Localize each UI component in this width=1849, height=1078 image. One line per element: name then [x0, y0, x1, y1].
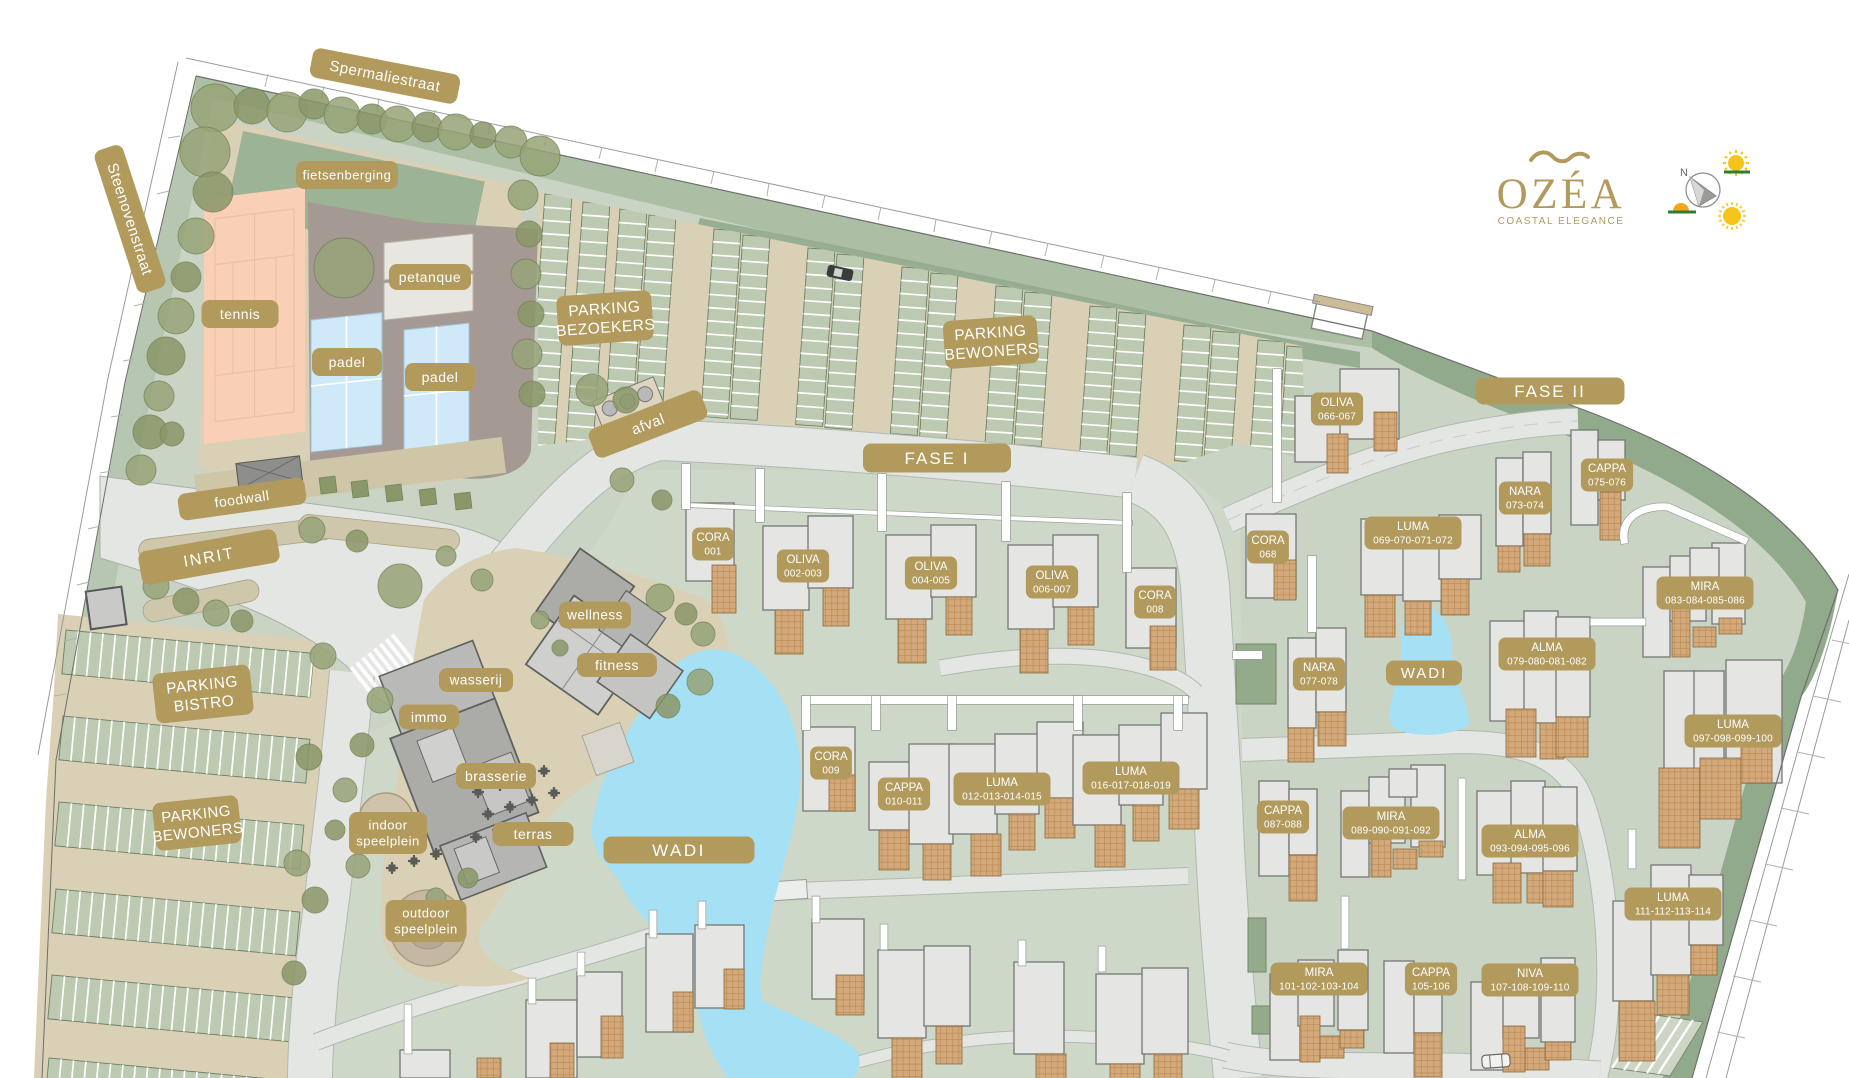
svg-text:CAPPA: CAPPA [1412, 967, 1450, 979]
svg-text:002-003: 002-003 [784, 569, 822, 580]
svg-text:MIRA: MIRA [1691, 581, 1720, 593]
svg-text:073-074: 073-074 [1506, 501, 1544, 512]
svg-text:outdoor: outdoor [402, 906, 450, 921]
svg-text:OLIVA: OLIVA [1035, 570, 1068, 582]
svg-text:CAPPA: CAPPA [885, 782, 923, 794]
svg-text:CORA: CORA [1138, 590, 1172, 602]
svg-text:FASE I: FASE I [905, 449, 970, 468]
svg-text:105-106: 105-106 [1412, 982, 1450, 993]
svg-text:079-080-081-082: 079-080-081-082 [1507, 657, 1587, 668]
svg-text:012-013-014-015: 012-013-014-015 [962, 792, 1042, 803]
svg-text:016-017-018-019: 016-017-018-019 [1091, 781, 1171, 792]
svg-text:terras: terras [514, 826, 553, 842]
svg-text:WADI: WADI [1401, 665, 1448, 682]
svg-text:LUMA: LUMA [1115, 766, 1147, 778]
svg-text:OZÉA: OZÉA [1497, 171, 1626, 218]
svg-text:padel: padel [329, 354, 366, 370]
svg-text:OLIVA: OLIVA [914, 561, 947, 573]
svg-text:CORA: CORA [696, 532, 730, 544]
svg-text:MIRA: MIRA [1377, 811, 1406, 823]
svg-text:immo: immo [411, 709, 447, 725]
svg-text:wellness: wellness [566, 608, 623, 623]
svg-text:LUMA: LUMA [1397, 521, 1429, 533]
svg-text:NIVA: NIVA [1517, 968, 1543, 980]
svg-text:fitness: fitness [595, 657, 639, 673]
svg-text:006-007: 006-007 [1033, 585, 1071, 596]
svg-text:CORA: CORA [1251, 535, 1285, 547]
svg-text:068: 068 [1259, 550, 1277, 561]
svg-text:077-078: 077-078 [1300, 677, 1338, 688]
svg-text:fietsenberging: fietsenberging [303, 167, 392, 182]
svg-text:111-112-113-114: 111-112-113-114 [1635, 907, 1711, 918]
svg-text:wasserij: wasserij [449, 673, 503, 688]
svg-text:093-094-095-096: 093-094-095-096 [1490, 844, 1570, 855]
svg-text:CAPPA: CAPPA [1264, 805, 1302, 817]
svg-text:WADI: WADI [652, 841, 706, 860]
svg-text:NARA: NARA [1509, 486, 1541, 498]
svg-text:009: 009 [822, 766, 840, 777]
svg-text:107-108-109-110: 107-108-109-110 [1491, 983, 1570, 994]
svg-text:LUMA: LUMA [986, 777, 1018, 789]
svg-text:N: N [1680, 167, 1688, 179]
svg-text:CAPPA: CAPPA [1588, 463, 1626, 475]
svg-text:indoor: indoor [368, 818, 407, 833]
svg-text:COASTAL ELEGANCE: COASTAL ELEGANCE [1498, 216, 1625, 227]
svg-text:petanque: petanque [399, 269, 461, 285]
svg-text:101-102-103-104: 101-102-103-104 [1279, 982, 1359, 993]
svg-text:069-070-071-072: 069-070-071-072 [1373, 536, 1453, 547]
svg-text:075-076: 075-076 [1588, 478, 1626, 489]
svg-text:010-011: 010-011 [885, 797, 923, 808]
svg-text:001: 001 [704, 547, 722, 558]
svg-text:padel: padel [422, 369, 459, 385]
svg-text:tennis: tennis [220, 306, 260, 322]
svg-text:OLIVA: OLIVA [786, 554, 819, 566]
svg-text:083-084-085-086: 083-084-085-086 [1665, 596, 1745, 607]
svg-text:LUMA: LUMA [1657, 892, 1689, 904]
svg-text:LUMA: LUMA [1717, 719, 1749, 731]
svg-text:speelplein: speelplein [394, 921, 458, 936]
svg-text:087-088: 087-088 [1264, 820, 1302, 831]
svg-text:CORA: CORA [814, 751, 848, 763]
svg-text:speelplein: speelplein [356, 833, 420, 848]
svg-text:NARA: NARA [1303, 662, 1335, 674]
svg-text:OLIVA: OLIVA [1320, 397, 1353, 409]
svg-text:008: 008 [1146, 605, 1164, 616]
svg-text:004-005: 004-005 [912, 576, 950, 587]
svg-text:FASE II: FASE II [1514, 382, 1586, 401]
svg-text:brasserie: brasserie [465, 768, 527, 784]
svg-text:089-090-091-092: 089-090-091-092 [1351, 826, 1431, 837]
svg-text:066-067: 066-067 [1318, 412, 1356, 423]
svg-text:ALMA: ALMA [1514, 829, 1546, 841]
svg-text:ALMA: ALMA [1531, 642, 1563, 654]
svg-text:097-098-099-100: 097-098-099-100 [1693, 734, 1773, 745]
svg-text:MIRA: MIRA [1305, 967, 1334, 979]
